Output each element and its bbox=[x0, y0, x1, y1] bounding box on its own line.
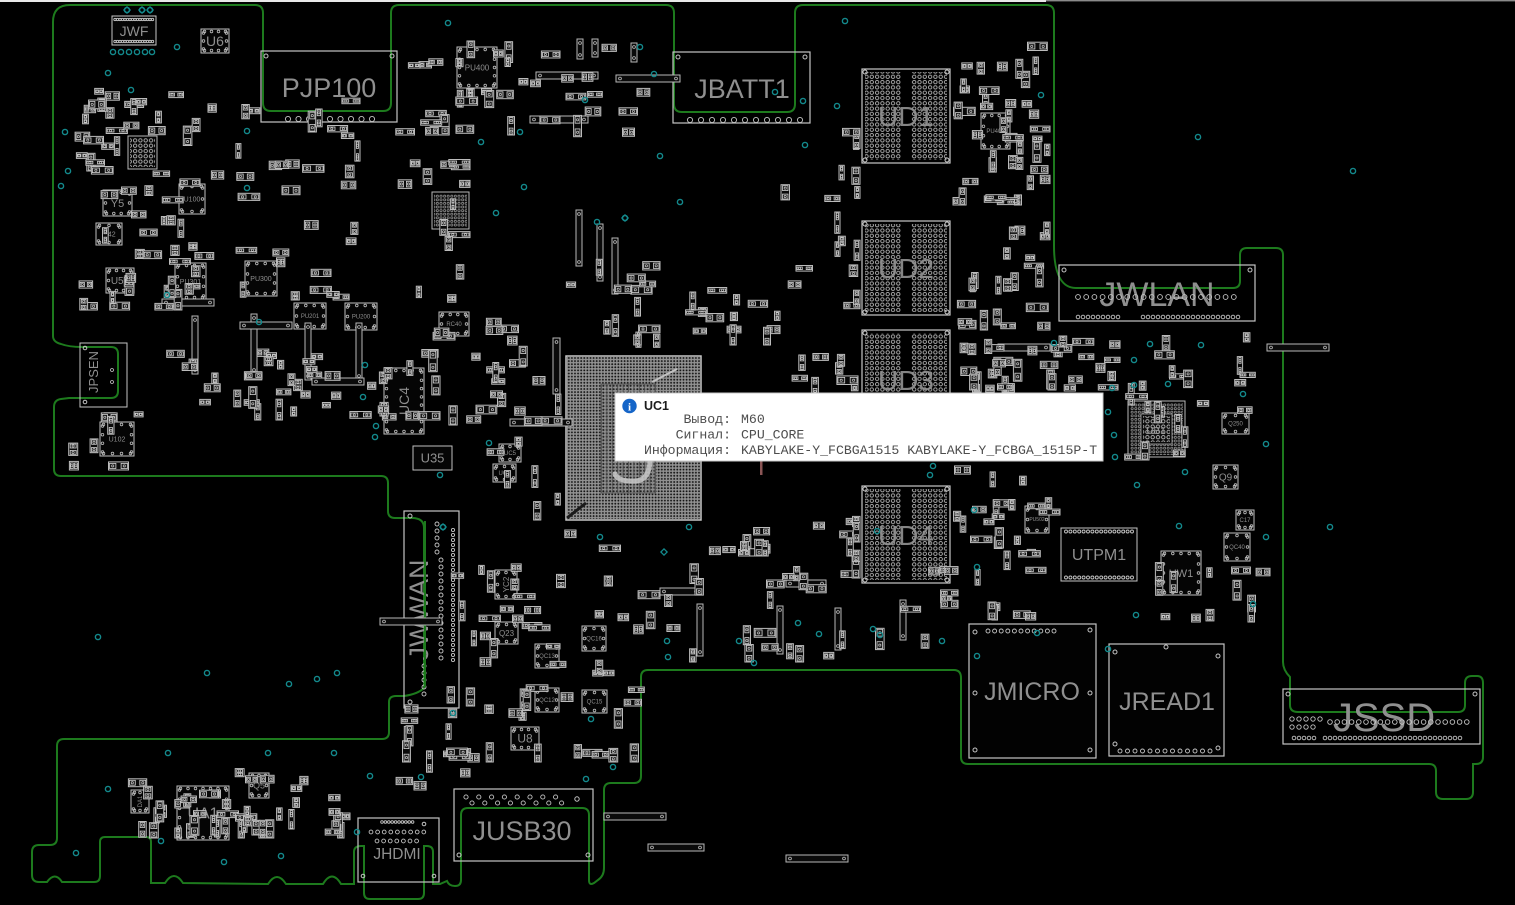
svg-text:Q9: Q9 bbox=[1219, 473, 1233, 484]
svg-text:KABYLAKE-Y_FCBGA1515 KABYLAKE-: KABYLAKE-Y_FCBGA1515 KABYLAKE-Y_FCBGA_15… bbox=[741, 443, 1097, 458]
svg-text:JPSEN: JPSEN bbox=[86, 351, 101, 393]
svg-text:Y5: Y5 bbox=[111, 198, 124, 210]
svg-text:Информация:: Информация: bbox=[644, 443, 731, 458]
svg-text:i: i bbox=[628, 402, 631, 414]
svg-text:JWF: JWF bbox=[120, 23, 149, 39]
svg-text:PJP100: PJP100 bbox=[282, 73, 377, 103]
svg-text:JMICRO: JMICRO bbox=[984, 678, 1080, 706]
svg-text:U102: U102 bbox=[109, 436, 126, 443]
svg-text:QC15: QC15 bbox=[587, 700, 603, 706]
svg-text:QC12: QC12 bbox=[539, 698, 555, 704]
svg-text:Сигнал:: Сигнал: bbox=[676, 428, 731, 443]
svg-text:QC13: QC13 bbox=[539, 654, 555, 660]
svg-text:PU502: PU502 bbox=[1029, 517, 1045, 523]
svg-text:UC1: UC1 bbox=[644, 399, 669, 413]
svg-text:JHDMI: JHDMI bbox=[373, 846, 420, 863]
svg-text:U35: U35 bbox=[421, 451, 445, 466]
svg-text:PU201: PU201 bbox=[301, 314, 320, 320]
svg-text:PU200: PU200 bbox=[352, 315, 371, 321]
svg-text:JREAD1: JREAD1 bbox=[1119, 688, 1215, 716]
svg-text:RC40: RC40 bbox=[446, 322, 462, 328]
svg-text:JSSD: JSSD bbox=[1333, 696, 1435, 740]
svg-text:UB1: UB1 bbox=[1146, 426, 1166, 437]
svg-text:C17: C17 bbox=[1239, 518, 1251, 524]
svg-text:JWLAN: JWLAN bbox=[1099, 276, 1214, 314]
svg-text:U100: U100 bbox=[184, 196, 201, 203]
svg-text:UC4: UC4 bbox=[396, 387, 412, 415]
svg-text:UD1: UD1 bbox=[878, 101, 934, 132]
svg-text:U8: U8 bbox=[517, 732, 533, 746]
svg-text:UD3: UD3 bbox=[878, 365, 934, 396]
svg-text:UD4: UD4 bbox=[878, 520, 934, 551]
svg-text:Q23: Q23 bbox=[499, 629, 515, 638]
svg-text:QC16: QC16 bbox=[586, 637, 602, 643]
svg-text:UC5: UC5 bbox=[504, 451, 517, 457]
svg-text:UD2: UD2 bbox=[878, 253, 934, 284]
svg-text:U6: U6 bbox=[206, 33, 224, 49]
svg-text:PU300: PU300 bbox=[250, 276, 272, 283]
svg-text:CPU_CORE: CPU_CORE bbox=[741, 428, 804, 443]
svg-text:YC2: YC2 bbox=[502, 576, 511, 592]
svg-text:Q250: Q250 bbox=[1228, 422, 1243, 428]
svg-text:M60: M60 bbox=[741, 412, 765, 427]
svg-text:Вывод:: Вывод: bbox=[684, 412, 731, 427]
svg-text:PU400: PU400 bbox=[465, 63, 490, 72]
svg-text:JUSB30: JUSB30 bbox=[472, 816, 571, 846]
svg-text:UTPM1: UTPM1 bbox=[1072, 547, 1126, 564]
svg-text:QC40: QC40 bbox=[1229, 545, 1245, 551]
svg-text:JWWAN: JWWAN bbox=[404, 560, 434, 661]
